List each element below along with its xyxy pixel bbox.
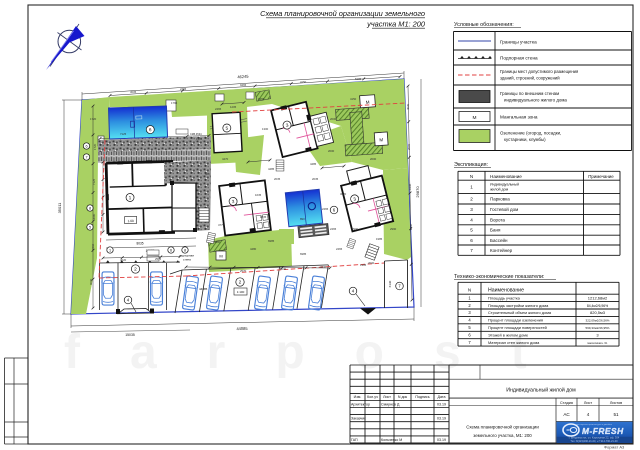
svg-text:2570: 2570 [240, 269, 247, 273]
svg-text:44085: 44085 [236, 326, 248, 331]
svg-text:4: 4 [587, 412, 590, 417]
svg-text:1300: 1300 [262, 127, 269, 131]
svg-text:6130: 6130 [388, 280, 392, 287]
svg-text:2000: 2000 [370, 157, 377, 161]
svg-text:4030: 4030 [406, 103, 410, 110]
svg-text:2000: 2000 [330, 117, 337, 121]
svg-text:Формат А3: Формат А3 [604, 445, 625, 450]
svg-text:Бассейн: Бассейн [490, 237, 508, 243]
svg-text:9465: 9465 [258, 97, 265, 101]
svg-text:6: 6 [170, 248, 172, 252]
svg-text:N док: N док [398, 395, 408, 399]
svg-text:1720: 1720 [93, 143, 97, 150]
svg-text:Подпорная стена: Подпорная стена [500, 56, 538, 61]
svg-text:Площадь застройки жилого дома: Площадь застройки жилого дома [488, 303, 549, 308]
svg-text:2465: 2465 [336, 247, 343, 251]
svg-text:7: 7 [85, 155, 87, 159]
svg-text:Условные обозначения:: Условные обозначения: [454, 22, 514, 28]
svg-text:15035: 15035 [125, 333, 135, 337]
svg-text:Схема планировочной организаци: Схема планировочной организации [466, 425, 539, 430]
svg-text:2575: 2575 [155, 257, 162, 261]
svg-text:1: 1 [470, 185, 473, 190]
svg-text:4480: 4480 [250, 247, 257, 251]
svg-text:2465: 2465 [180, 87, 187, 91]
svg-text:2000: 2000 [328, 149, 335, 153]
svg-text:1905: 1905 [196, 137, 203, 141]
svg-text:2465: 2465 [322, 207, 329, 211]
svg-text:1: 1 [109, 248, 111, 252]
svg-text:29870: 29870 [415, 186, 420, 198]
svg-text:5: 5 [470, 228, 473, 233]
svg-text:4020: 4020 [120, 258, 127, 262]
svg-text:820,5м3: 820,5м3 [590, 310, 606, 315]
svg-text:46245: 46245 [237, 74, 249, 80]
svg-text:Площадь участка: Площадь участка [488, 295, 521, 300]
svg-text:3030: 3030 [280, 267, 287, 271]
svg-text:4150: 4150 [300, 80, 307, 84]
svg-text:2990: 2990 [390, 227, 397, 231]
svg-text:322,09м2/26,56%: 322,09м2/26,56% [586, 319, 610, 323]
svg-text:Процент площади поверхностей: Процент площади поверхностей [488, 325, 547, 330]
svg-text:2990: 2990 [409, 223, 413, 230]
svg-text:6985: 6985 [300, 252, 307, 256]
svg-text:7: 7 [470, 248, 473, 253]
svg-text:1985: 1985 [360, 263, 367, 267]
svg-text:7125: 7125 [120, 132, 127, 136]
svg-text:Процент площади озеленения: Процент площади озеленения [488, 318, 543, 323]
svg-text:СКВ.4534: СКВ.4534 [190, 132, 202, 136]
svg-text:кустарники, клумбы): кустарники, клумбы) [504, 137, 546, 142]
svg-text:6060: 6060 [89, 278, 93, 285]
svg-text:51: 51 [613, 412, 619, 417]
svg-text:Стадия: Стадия [560, 401, 573, 405]
svg-text:Границы по внешним стенам: Границы по внешним стенам [500, 91, 559, 96]
svg-text:Строительный объем жилого дома: Строительный объем жилого дома [488, 310, 552, 315]
svg-text:84,4м2/6,96%: 84,4м2/6,96% [587, 304, 608, 308]
svg-text:Ворота: Ворота [490, 217, 505, 222]
svg-text:4485: 4485 [310, 162, 317, 166]
svg-text:Озеленение (огород, посадки,: Озеленение (огород, посадки, [500, 131, 561, 136]
svg-text:35011: 35011 [57, 202, 62, 214]
svg-text:M-FRESH: M-FRESH [582, 426, 624, 436]
svg-text:Экспликация:: Экспликация: [454, 162, 488, 168]
svg-text:4775: 4775 [218, 223, 225, 227]
svg-text:2000: 2000 [407, 143, 411, 150]
svg-text:2: 2 [470, 197, 473, 202]
svg-text:1212,68м2: 1212,68м2 [588, 295, 608, 300]
svg-text:Изм.: Изм. [354, 395, 362, 399]
svg-text:03.19: 03.19 [437, 402, 446, 406]
svg-text:газосиликатн. бл.: газосиликатн. бл. [587, 341, 608, 345]
svg-text:2035: 2035 [312, 177, 319, 181]
svg-text:Смирнов Д: Смирнов Д [381, 402, 400, 406]
svg-text:2: 2 [134, 267, 137, 273]
svg-text:3005: 3005 [130, 90, 137, 94]
svg-text:44085: 44085 [199, 287, 208, 291]
svg-text:Лист: Лист [383, 395, 391, 399]
svg-text:Гостевой дом: Гостевой дом [490, 206, 518, 212]
svg-text:4470: 4470 [222, 157, 229, 161]
svg-text:Мангальная зона: Мангальная зона [500, 115, 538, 120]
svg-text:ГАП: ГАП [351, 438, 358, 442]
svg-text:4480: 4480 [214, 240, 221, 244]
svg-text:569,33м2/46,95%: 569,33м2/46,95% [586, 326, 610, 330]
svg-text:Этажей в жилом доме: Этажей в жилом доме [488, 333, 528, 338]
svg-text:Баня: Баня [490, 228, 501, 233]
svg-text:Кол.уч: Кол.уч [367, 395, 378, 399]
svg-text:Границы участка: Границы участка [500, 40, 537, 45]
svg-text:6130: 6130 [408, 183, 412, 190]
svg-text:N: N [470, 174, 473, 179]
svg-text:03.19: 03.19 [437, 438, 446, 442]
svg-text:Материал стен жилого дома: Материал стен жилого дома [488, 340, 540, 345]
svg-text:земельного участка, М1: 200: земельного участка, М1: 200 [473, 433, 532, 438]
svg-text:N: N [468, 287, 471, 292]
svg-text:3020: 3020 [340, 192, 347, 196]
svg-text:Листов: Листов [610, 401, 622, 405]
svg-text:800: 800 [205, 172, 210, 176]
svg-text:Кольченко М: Кольченко М [381, 438, 402, 442]
svg-text:Примечание: Примечание [588, 174, 614, 179]
svg-text:4485: 4485 [268, 167, 275, 171]
svg-text:Лист: Лист [584, 401, 593, 405]
svg-text:5: 5 [89, 225, 91, 229]
svg-text:8: 8 [184, 248, 186, 252]
svg-text:Технико-экономические показате: Технико-экономические показатели: [454, 274, 545, 280]
svg-text:1:100: 1:100 [237, 290, 245, 294]
svg-text:2990: 2990 [352, 227, 359, 231]
svg-text:1985: 1985 [376, 237, 383, 241]
svg-text:Контейнер: Контейнер [490, 247, 513, 253]
svg-text:2035: 2035 [274, 177, 281, 181]
svg-text:2465: 2465 [330, 227, 337, 231]
svg-text:Границы мест допустимого разме: Границы мест допустимого размещения [500, 69, 578, 74]
svg-text:2410: 2410 [91, 243, 95, 250]
svg-text:4230: 4230 [320, 265, 327, 269]
svg-text:03.19: 03.19 [437, 417, 446, 421]
svg-text:М: М [473, 115, 477, 121]
svg-text:М: М [379, 137, 383, 142]
svg-text:6: 6 [85, 144, 87, 148]
svg-text:индивидуального жилого дома: индивидуального жилого дома [504, 98, 567, 103]
svg-text:Архитектор: Архитектор [351, 402, 370, 406]
svg-text:М: М [366, 100, 370, 105]
svg-text:3080: 3080 [92, 213, 96, 220]
svg-text:Наименование: Наименование [488, 287, 524, 293]
svg-text:7125: 7125 [92, 178, 96, 185]
svg-text:3: 3 [470, 207, 473, 212]
svg-text:4150: 4150 [350, 97, 357, 101]
svg-text:Наименование: Наименование [490, 174, 522, 179]
svg-text:1720: 1720 [90, 117, 97, 121]
svg-text:Заказчик: Заказчик [351, 417, 366, 421]
svg-text:М: М [219, 254, 222, 259]
svg-text:2: 2 [239, 280, 242, 286]
svg-text:участка М1: 200: участка М1: 200 [366, 19, 426, 28]
svg-text:Индивидуальный: Индивидуальный [490, 182, 519, 186]
svg-text:890: 890 [300, 217, 305, 221]
svg-text:5385: 5385 [355, 77, 362, 81]
svg-text:2465: 2465 [215, 107, 222, 111]
svg-text:Индивидуальный жилой дом: Индивидуальный жилой дом [506, 387, 576, 394]
svg-text:Дата: Дата [438, 395, 446, 399]
svg-text:9465: 9465 [240, 83, 247, 87]
svg-text:Парковка: Парковка [490, 197, 510, 202]
svg-text:1765: 1765 [171, 101, 178, 105]
svg-text:8: 8 [89, 206, 91, 210]
svg-text:зданий, строений, сооружений: зданий, строений, сооружений [500, 76, 560, 81]
svg-text:6: 6 [470, 238, 473, 243]
svg-text:1205: 1205 [230, 105, 237, 109]
svg-text:8035: 8035 [136, 242, 143, 246]
svg-text:мастерская архитектуры и дизай: мастерская архитектуры и дизайна [576, 423, 613, 426]
svg-text:2000: 2000 [368, 261, 375, 265]
svg-text:1635: 1635 [255, 193, 262, 197]
svg-text:1635: 1635 [260, 215, 267, 219]
svg-text:стена: стена [183, 257, 191, 261]
svg-text:жилой дом: жилой дом [490, 188, 509, 192]
svg-text:Подпись: Подпись [415, 395, 429, 399]
svg-text:6985: 6985 [268, 239, 275, 243]
svg-text:АС: АС [563, 412, 570, 417]
svg-text:4: 4 [470, 217, 473, 222]
svg-text:Тел: 8(423)290-21-00, +7 914-7: Тел: 8(423)290-21-00, +7 914-790-21-00 [570, 439, 618, 443]
svg-text:1.00: 1.00 [127, 219, 134, 223]
svg-text:Схема планировочной организаци: Схема планировочной организации земельно… [260, 9, 425, 18]
